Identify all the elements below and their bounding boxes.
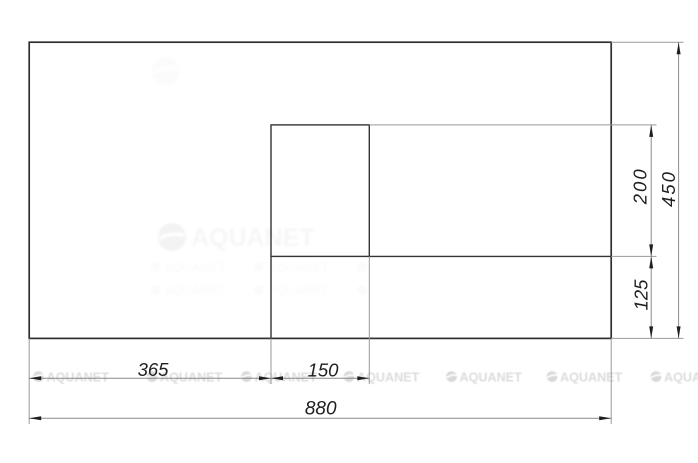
svg-text:AQUANET: AQUANET [267,284,329,298]
svg-text:AQUANET: AQUANET [357,370,420,384]
svg-text:AQUANET: AQUANET [560,370,623,384]
svg-text:AQUANET: AQUANET [664,370,698,384]
svg-text:150: 150 [308,359,340,380]
svg-text:125: 125 [631,279,652,311]
svg-text:AQUANET: AQUANET [267,261,329,275]
svg-text:200: 200 [630,167,651,205]
svg-text:880: 880 [305,399,337,420]
svg-text:450: 450 [658,170,679,207]
svg-text:365: 365 [138,359,170,380]
svg-text:AQUANET: AQUANET [160,370,223,384]
svg-text:AQUANET: AQUANET [460,370,523,384]
svg-text:AQUANET: AQUANET [47,370,110,384]
svg-text:AQUANET: AQUANET [191,224,315,252]
svg-text:AQUANET: AQUANET [164,261,226,275]
svg-text:AQUANET: AQUANET [164,284,226,298]
